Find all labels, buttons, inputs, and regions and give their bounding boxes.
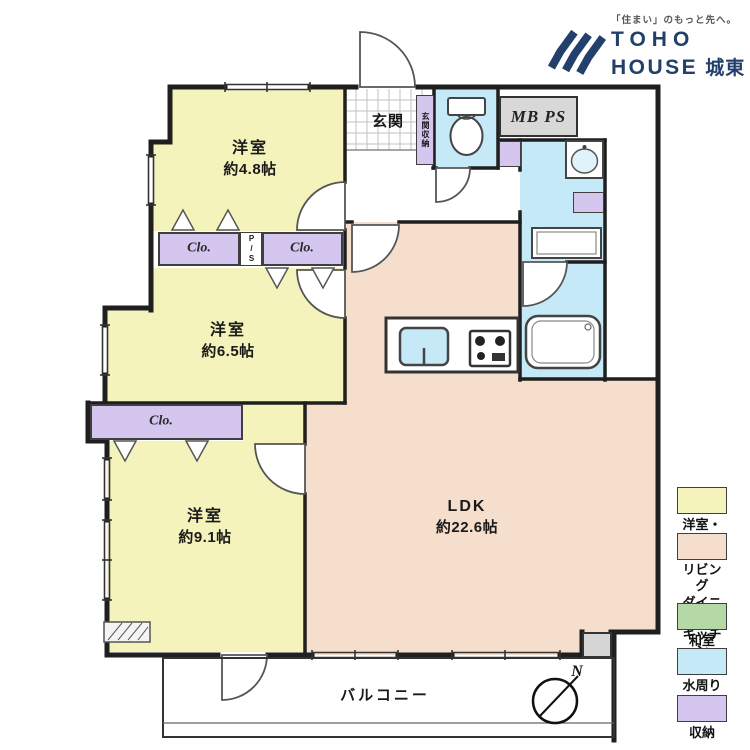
bedroom-mid-size: 約6.5帖 — [201, 342, 254, 362]
legend-swatch-water — [677, 648, 727, 675]
bedroom-large-name: 洋室 — [178, 506, 231, 528]
legend-swatch-ldk — [677, 533, 727, 560]
north-compass — [533, 676, 578, 723]
pipe-space-label: P/S — [247, 234, 255, 264]
legend-swatch-western — [677, 487, 727, 514]
legend-swatch-storage — [677, 695, 727, 722]
mb-ps-label: MB PS — [511, 107, 567, 127]
washroom-cabinet-box — [573, 192, 604, 213]
bedroom-small-name: 洋室 — [223, 138, 276, 160]
closet-b-label: Clo. — [290, 240, 314, 259]
logo-brand-house: HOUSE — [611, 56, 698, 79]
bedroom-large-size: 約9.1帖 — [178, 528, 231, 548]
ldk-door-swing — [352, 225, 399, 272]
balcony-door-swing — [222, 655, 267, 700]
legend-label-water: 水周り — [682, 678, 721, 694]
logo-tagline: 「住まい」のもっと先へ。 — [611, 12, 737, 26]
toho-house-logo: 「住まい」のもっと先へ。 TOHO HOUSE城東 — [545, 6, 750, 84]
bathtub-icon — [526, 316, 600, 368]
closet-c-label: Clo. — [149, 413, 173, 432]
closet-a-label: Clo. — [187, 240, 211, 259]
small-closet-box — [499, 141, 521, 167]
washing-machine-pan-icon — [532, 228, 601, 258]
legend-label-storage: 収納 — [689, 725, 715, 741]
bedroom-small-door-swing — [297, 182, 345, 230]
bedroom-small-size: 約4.8帖 — [223, 160, 276, 180]
bedroom-mid-label: 洋室 約6.5帖 — [201, 320, 254, 362]
mb-ps-box: MB PS — [499, 96, 578, 137]
ldk-name: LDK — [436, 496, 498, 518]
bedroom-small-label: 洋室 約4.8帖 — [223, 138, 276, 180]
legend-swatch-washitsu — [677, 603, 727, 630]
entrance-label: 玄関 — [372, 112, 404, 132]
toho-house-logo-mark — [547, 20, 609, 78]
front-door-swing — [360, 32, 415, 87]
logo-brand-bottom: HOUSE城東 — [611, 53, 745, 80]
compass-north-label: N — [571, 663, 583, 681]
bedroom-large-label: 洋室 約9.1帖 — [178, 506, 231, 548]
logo-brand-area: 城東 — [705, 58, 745, 79]
kitchen-counter-icon — [386, 318, 518, 372]
entrance-storage-label: 玄関収納 — [421, 112, 429, 148]
toilet-icon — [448, 98, 485, 155]
bedroom-large-door-swing — [255, 444, 305, 494]
ldk-size: 約22.6帖 — [436, 518, 498, 538]
logo-brand-top: TOHO — [611, 28, 695, 52]
floorplan-page: MB PS 洋室 約4.8帖 洋室 約6.5帖 洋室 約9.1帖 LDK 約22… — [0, 0, 750, 750]
washstand-icon — [566, 141, 603, 178]
legend-label-washitsu: 和室 — [689, 633, 715, 649]
bathroom-door-swing — [523, 262, 567, 306]
balcony-label: バルコニー — [340, 686, 430, 706]
bedroom-mid-name: 洋室 — [201, 320, 254, 342]
hatch-box — [104, 622, 150, 642]
corner-wall-block — [582, 632, 612, 658]
ldk-label: LDK 約22.6帖 — [436, 496, 498, 538]
toilet-door-swing — [436, 168, 470, 202]
